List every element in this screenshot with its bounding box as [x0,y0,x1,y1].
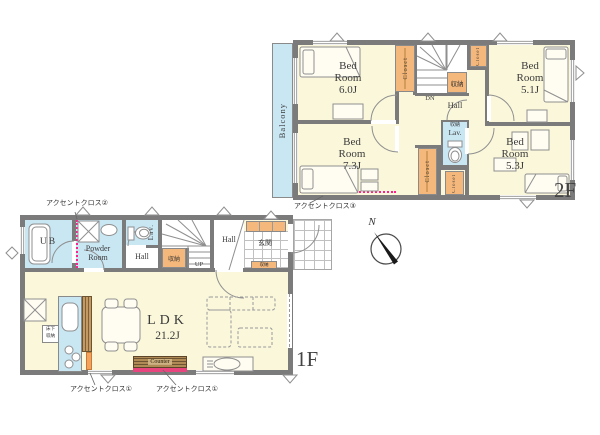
stairs-dn-label: DN [419,95,441,102]
floor1-wall-int [122,245,162,248]
floor1-wall-right [288,215,293,375]
entrance-hall-label: Hall [214,236,244,245]
closet-label: Closet [452,174,457,193]
ldk-label: LDK 21.2J [140,313,195,343]
accent-cloth-3-label: アクセントクロス③ [294,203,364,211]
storage-2f: 収納 [447,72,467,93]
underfloor-storage-box: 床下収納 [42,325,59,343]
closet-2f-lower: Closet [418,148,437,195]
compass-needle [374,232,398,265]
stairs-up-label: UP [189,261,209,268]
floor2-wall-int [487,122,572,126]
floor2-wall-int [441,167,469,170]
accent-cloth-2-label: アクセントクロス② [46,200,116,208]
floor2-wall-int [467,67,487,70]
compass [371,232,401,265]
storage-label: 収納 [168,254,180,263]
shoe-cabinet [246,221,286,232]
floor2-wall-top [293,40,575,45]
floor1-label: 1F [296,348,336,371]
balcony-label: Balcony [278,103,287,138]
lav-1f-label-wrap: Lav. [146,222,158,242]
accent-cloth-1-left-label: アクセントクロス① [70,386,140,394]
powder-room-label: PowderRoom [74,245,122,262]
floor2-label: 2F [554,179,594,202]
closet-2f-lower-small: Closet [445,171,464,195]
closet-label: Closet [476,47,481,66]
counter-accent-strip [133,368,187,372]
hall-1f-small-label: Hall [123,253,161,262]
lav-2f-label: Lav. [443,129,467,137]
closet-label: Closet [402,57,409,80]
floor2-wall-bottom [293,195,575,200]
closet-label: Closet [424,160,431,183]
room-label-bedroom-7.3: BedRoom7.3J [302,137,402,173]
lav-1f-label: Lav. [148,224,156,240]
accent-cloth-line-2f [300,191,396,193]
kitchen-counter [58,296,82,372]
floor-plan-canvas: Closet Closet 収納 Closet Closet 収納 収納 Cou… [0,0,600,435]
floor1-wall-top [20,215,293,220]
room-label-bedroom-6.0: BedRoom6.0J [298,61,398,97]
room-label-bedroom-5.1: BedRoom5.1J [488,61,572,97]
closet-2f-topright: Closet [470,45,487,67]
entrance-porch [293,219,332,270]
compass-north-label: N [362,217,382,229]
floor1-wall-int [25,268,288,272]
floor2-wall-int [298,120,399,124]
underfloor-storage-label: 床下収納 [43,326,58,340]
room-label-bedroom-5.3: BedRoom5.3J [473,137,557,173]
entrance-label: 玄関 [246,240,284,248]
closet-2f-upper: Closet [395,45,415,92]
ub-label: UB [25,237,72,247]
storage-1f-top: 収納 [162,248,186,268]
kitchen-accent-strip [86,352,92,370]
balcony-label-wrap: Balcony [272,43,293,198]
counter-label: Counter [148,359,171,366]
hall-2f-label: Hall [435,101,475,110]
accent-cloth-1-right-label: アクセントクロス① [156,386,226,394]
storage-label: 収納 [451,78,464,88]
kitchen-wood-panel [82,296,92,352]
counter-bar: Counter [133,356,187,368]
